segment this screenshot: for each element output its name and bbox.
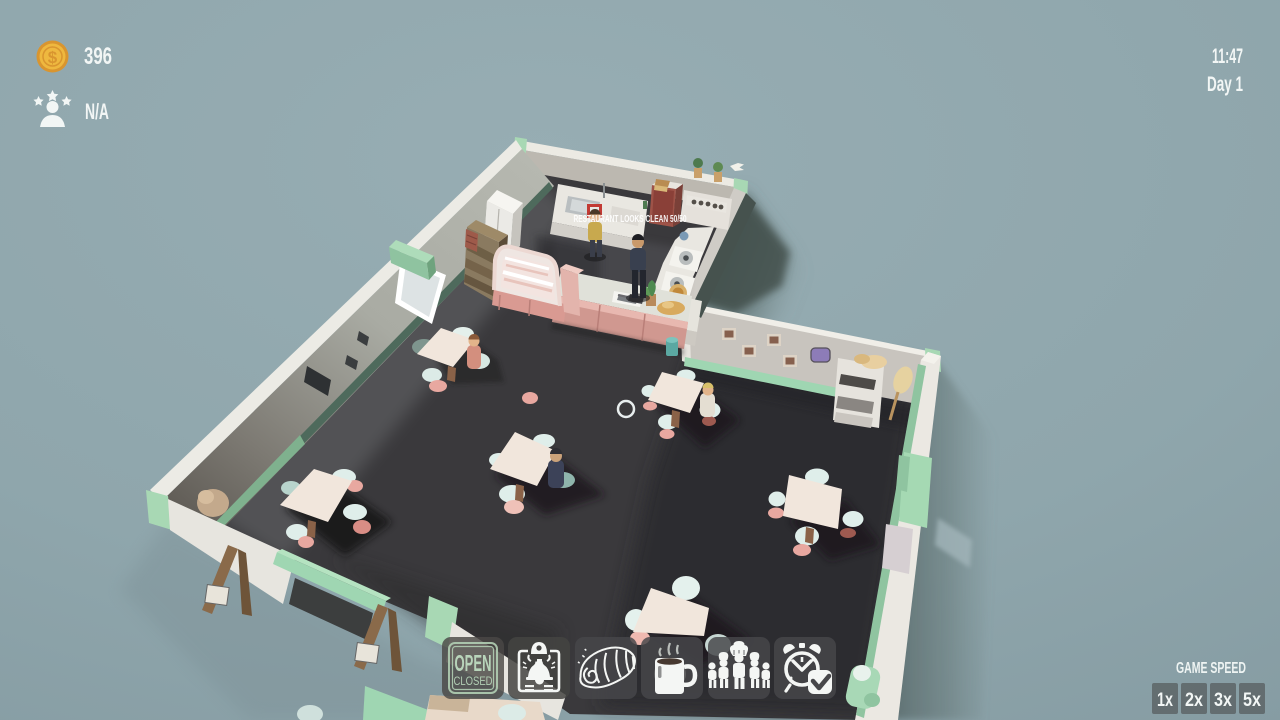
svg-text:RESTAURANT LOOKS CLEAN 50/50: RESTAURANT LOOKS CLEAN 50/50 — [574, 214, 687, 225]
svg-text:1x: 1x — [1157, 690, 1173, 711]
svg-text:396: 396 — [84, 43, 112, 70]
svg-text:$: $ — [48, 48, 58, 67]
svg-text:2x: 2x — [1185, 690, 1203, 711]
svg-text:GAME SPEED: GAME SPEED — [1176, 660, 1246, 677]
svg-text:OPEN: OPEN — [455, 650, 492, 676]
svg-text:Day 1: Day 1 — [1207, 73, 1243, 96]
svg-text:N/A: N/A — [85, 99, 109, 124]
svg-text:3x: 3x — [1214, 690, 1232, 711]
svg-text:CLOSED: CLOSED — [454, 674, 493, 688]
svg-text:11:47: 11:47 — [1212, 45, 1243, 68]
svg-text:5x: 5x — [1243, 690, 1261, 711]
